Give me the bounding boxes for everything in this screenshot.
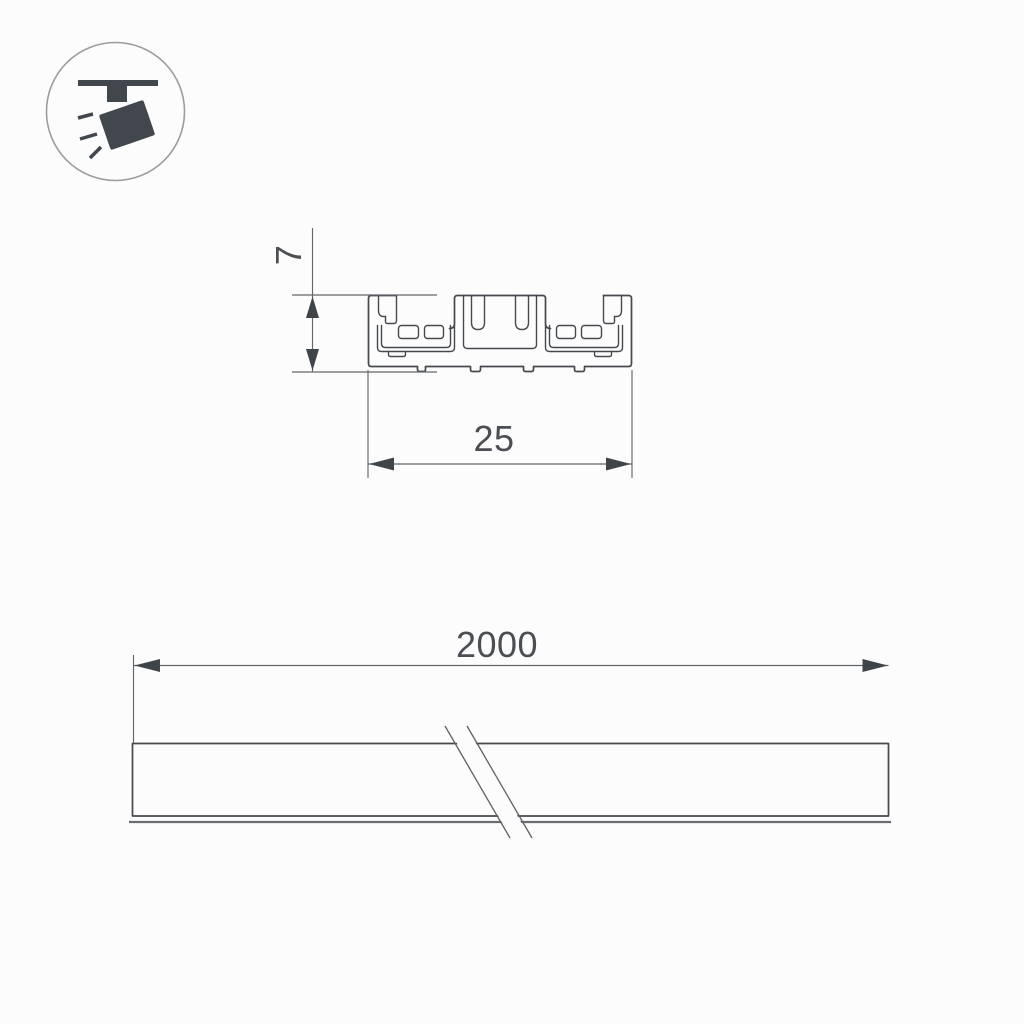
icon-lamp-stem bbox=[107, 85, 127, 102]
dim-length: 2000 bbox=[134, 624, 889, 743]
track-light-icon bbox=[47, 43, 185, 181]
conductor-contact bbox=[399, 326, 419, 339]
arrowhead-left bbox=[369, 458, 394, 471]
profile-rim-hook-left bbox=[379, 296, 397, 324]
pocket-right-foot bbox=[595, 352, 612, 357]
dim-height-label: 7 bbox=[268, 245, 309, 266]
conductor-contact bbox=[557, 326, 576, 339]
dim-width-label: 25 bbox=[473, 418, 514, 459]
drawing-page: 7 25 2000 bbox=[0, 0, 1024, 1024]
dim-length-label: 2000 bbox=[456, 624, 538, 665]
conductor-contact bbox=[582, 326, 602, 339]
cross-section-view bbox=[369, 296, 632, 372]
arrowhead-left bbox=[135, 659, 161, 672]
dim-height: 7 bbox=[268, 228, 437, 372]
pocket-right-inner bbox=[550, 326, 619, 348]
profile-rim-hook-right bbox=[604, 296, 622, 324]
arrowhead-up bbox=[306, 297, 319, 319]
profile-shell bbox=[369, 296, 632, 372]
pocket-left-foot bbox=[389, 352, 406, 357]
dim-width: 25 bbox=[368, 370, 632, 478]
center-boss-hook-right bbox=[516, 296, 529, 330]
center-boss-hook-left bbox=[472, 296, 485, 330]
pocket-left-inner bbox=[382, 326, 451, 348]
arrowhead-right bbox=[606, 458, 631, 471]
center-boss-cavity bbox=[464, 296, 537, 349]
side-view bbox=[129, 725, 891, 839]
arrowhead-right bbox=[863, 659, 889, 672]
technical-drawing-canvas: 7 25 2000 bbox=[0, 0, 1024, 1024]
center-boss-outer bbox=[450, 296, 551, 329]
arrowhead-down bbox=[306, 349, 319, 371]
conductor-contact bbox=[425, 326, 444, 339]
